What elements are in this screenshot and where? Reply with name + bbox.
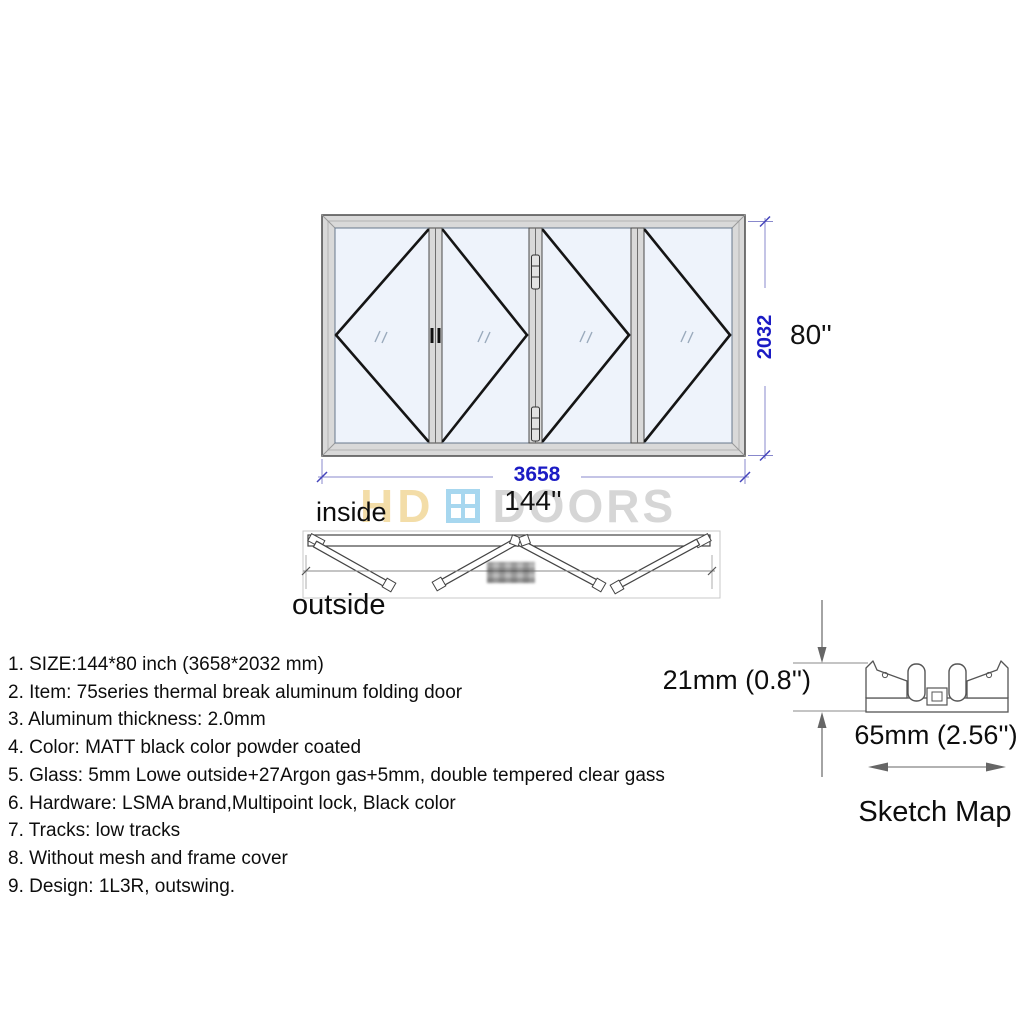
- roller-left: [908, 664, 925, 701]
- panel-1-top-view: [313, 541, 389, 588]
- height-mm-label: 2032: [754, 288, 776, 386]
- width-mm-label: 3658: [493, 463, 581, 486]
- window-pane: [451, 508, 461, 518]
- door-elevation-drawing: [300, 200, 780, 500]
- spec-item: 1. SIZE:144*80 inch (3658*2032 mm): [8, 651, 665, 679]
- spec-item: 3. Aluminum thickness: 2.0mm: [8, 706, 665, 734]
- blurred-stamp: [487, 562, 535, 583]
- spec-item: 4. Color: MATT black color powder coated: [8, 734, 665, 762]
- roller-right: [949, 664, 966, 701]
- up-arrow-icon: [818, 712, 827, 777]
- width-arrow-icon: [868, 763, 1006, 772]
- track-cross-section: [866, 661, 1008, 712]
- sketch-map-caption: Sketch Map: [845, 797, 1024, 829]
- spec-item: 8. Without mesh and frame cover: [8, 845, 665, 873]
- height-inch-label: 80'': [790, 320, 832, 351]
- inside-label: inside: [316, 498, 387, 528]
- track-height-label: 21mm (0.8''): [615, 666, 811, 696]
- spec-item: 6. Hardware: LSMA brand,Multipoint lock,…: [8, 790, 665, 818]
- outside-label: outside: [292, 590, 386, 622]
- spec-item: 2. Item: 75series thermal break aluminum…: [8, 679, 665, 707]
- spec-item: 5. Glass: 5mm Lowe outside+27Argon gas+5…: [8, 762, 665, 790]
- track-width-label: 65mm (2.56''): [838, 721, 1024, 751]
- width-inch-label: 144'': [483, 486, 583, 517]
- spec-list: 1. SIZE:144*80 inch (3658*2032 mm) 2. It…: [8, 651, 665, 900]
- down-arrow-icon: [818, 600, 827, 663]
- panel-4-top-view: [616, 539, 700, 589]
- spec-item: 7. Tracks: low tracks: [8, 817, 665, 845]
- window-pane: [465, 508, 475, 518]
- spec-item: 9. Design: 1L3R, outswing.: [8, 873, 665, 901]
